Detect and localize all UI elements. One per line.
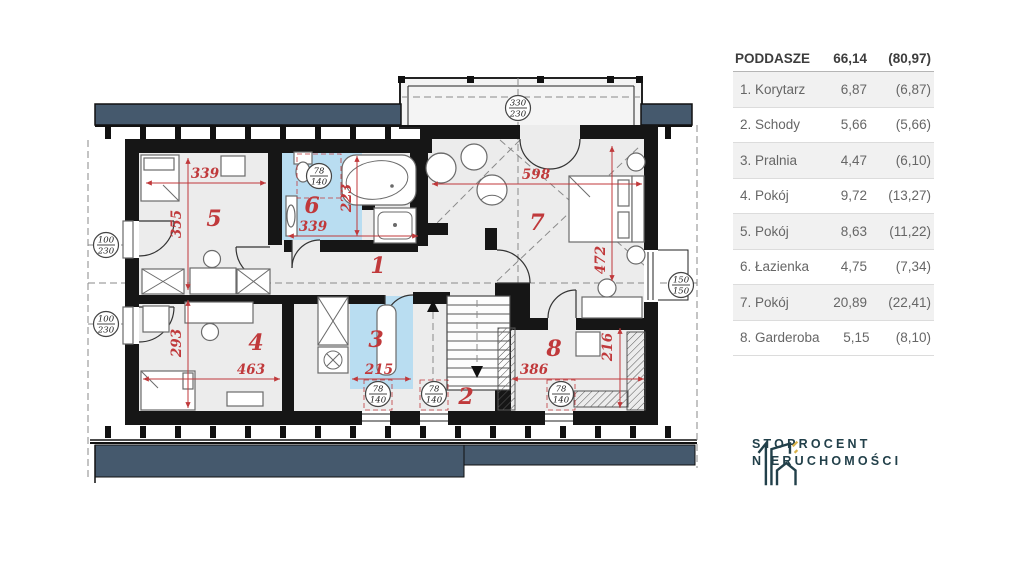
- marker-right: 150 150: [669, 273, 694, 298]
- room-6-number: 6: [304, 193, 319, 219]
- marker-value: 78: [556, 385, 567, 395]
- floor-plan-page: 339 355 339 223 598 472 293 463 215 386 …: [0, 0, 1024, 567]
- room-area: 4,47: [815, 153, 867, 168]
- room-3-number: 3: [368, 327, 383, 353]
- marker-value: 78: [429, 385, 440, 395]
- room-8-number: 8: [545, 336, 561, 362]
- room-area: 8,63: [815, 224, 867, 239]
- room-area-gross: (8,10): [870, 330, 934, 345]
- room-name: 6. Łazienka: [733, 259, 815, 274]
- dim-room8-height: 216: [600, 332, 616, 362]
- roof-band-top-right: [641, 104, 692, 125]
- roof-band-top-left: [95, 104, 401, 125]
- room-area-gross: (13,27): [867, 188, 934, 203]
- room-area: 6,87: [815, 82, 867, 97]
- marker-value: 150: [673, 276, 690, 286]
- marker-value: 150: [673, 287, 690, 297]
- armchair: [477, 175, 507, 205]
- dim-bath-width: 339: [299, 219, 328, 235]
- room-name: 7. Pokój: [733, 295, 815, 310]
- legend-row: 1. Korytarz 6,87 (6,87): [733, 72, 934, 108]
- clothes-rack: [627, 332, 645, 410]
- room-area: 5,15: [820, 330, 870, 345]
- round-table: [461, 144, 487, 170]
- marker-value: 78: [373, 385, 384, 395]
- dim-room4-width: 463: [237, 362, 265, 378]
- room-area-gross: (7,34): [867, 259, 934, 274]
- dim-room8-width: 386: [520, 362, 549, 378]
- dim-room4-height: 293: [169, 329, 185, 358]
- marker-value: 230: [97, 247, 115, 257]
- dim-laundry-width: 215: [364, 362, 393, 378]
- legend-row: 2. Schody 5,66 (5,66): [733, 108, 934, 144]
- room-name: 2. Schody: [733, 117, 815, 132]
- roof-band-bottom-left: [95, 445, 464, 477]
- marker-left-upper: 100 230: [94, 233, 119, 258]
- legend-row: 3. Pralnia 4,47 (6,10): [733, 143, 934, 179]
- dim-room7-height: 472: [593, 246, 609, 274]
- dim-room7-width: 598: [522, 167, 551, 183]
- clothes-rack: [498, 328, 515, 410]
- dim-room5-width: 339: [191, 166, 220, 182]
- room-area: 4,75: [815, 259, 867, 274]
- room-area-gross: (22,41): [867, 295, 934, 310]
- room-legend: PODDASZE 66,14 (80,97) 1. Korytarz 6,87 …: [733, 45, 934, 356]
- legend-row: 8. Garderoba 5,15 (8,10): [733, 321, 934, 357]
- room-area-gross: (5,66): [867, 117, 934, 132]
- room-area-gross: (6,10): [867, 153, 934, 168]
- room-name: 4. Pokój: [733, 188, 815, 203]
- company-logo: STOPROCENT NIERUCHOMOŚCI: [752, 436, 901, 470]
- roof-band-bottom-right: [464, 445, 695, 465]
- room-area-gross: (6,87): [867, 82, 934, 97]
- room-area: 20,89: [815, 295, 867, 310]
- legend-row: 7. Pokój 20,89 (22,41): [733, 285, 934, 321]
- rafter-ticks-bottom: [95, 426, 695, 438]
- legend-header: PODDASZE 66,14 (80,97): [733, 45, 934, 72]
- marker-skylight-r3: 78 140: [366, 382, 391, 407]
- room-name: 3. Pralnia: [733, 153, 815, 168]
- room-name: 8. Garderoba: [733, 330, 820, 345]
- desk: [582, 297, 642, 318]
- legend-total-gross: (80,97): [867, 51, 934, 66]
- marker-skylight-bath: 78 140: [307, 164, 332, 189]
- room-5-number: 5: [206, 206, 221, 232]
- legend-row: 6. Łazienka 4,75 (7,34): [733, 250, 934, 286]
- marker-value: 230: [509, 110, 527, 120]
- marker-value: 230: [97, 326, 115, 336]
- marker-value: 140: [311, 178, 328, 188]
- room-area: 5,66: [815, 117, 867, 132]
- marker-value: 78: [314, 167, 325, 177]
- logo-house-icon: [752, 436, 802, 490]
- dim-bath-height: 223: [339, 184, 355, 213]
- marker-skylight-r2: 78 140: [422, 382, 447, 407]
- room-name: 1. Korytarz: [733, 82, 815, 97]
- legend-row: 4. Pokój 9,72 (13,27): [733, 179, 934, 215]
- room-area: 9,72: [815, 188, 867, 203]
- legend-row: 5. Pokój 8,63 (11,22): [733, 214, 934, 250]
- marker-value: 140: [553, 396, 570, 406]
- room-4-number: 4: [248, 330, 263, 356]
- marker-value: 100: [98, 236, 115, 246]
- legend-title: PODDASZE: [733, 51, 815, 66]
- marker-value: 140: [426, 396, 443, 406]
- room-name: 5. Pokój: [733, 224, 815, 239]
- dim-room5-height: 355: [169, 210, 185, 238]
- marker-left-lower: 100 230: [94, 312, 119, 337]
- marker-skylight-r8: 78 140: [549, 382, 574, 407]
- room-2-number: 2: [457, 384, 473, 410]
- room-7-number: 7: [529, 210, 545, 236]
- marker-value: 100: [98, 315, 115, 325]
- marker-value: 330: [510, 99, 527, 109]
- room-1-number: 1: [370, 253, 385, 279]
- room-area-gross: (11,22): [867, 224, 934, 239]
- marker-value: 140: [370, 396, 387, 406]
- marker-balcony: 330 230: [506, 96, 531, 121]
- legend-total-area: 66,14: [815, 51, 867, 66]
